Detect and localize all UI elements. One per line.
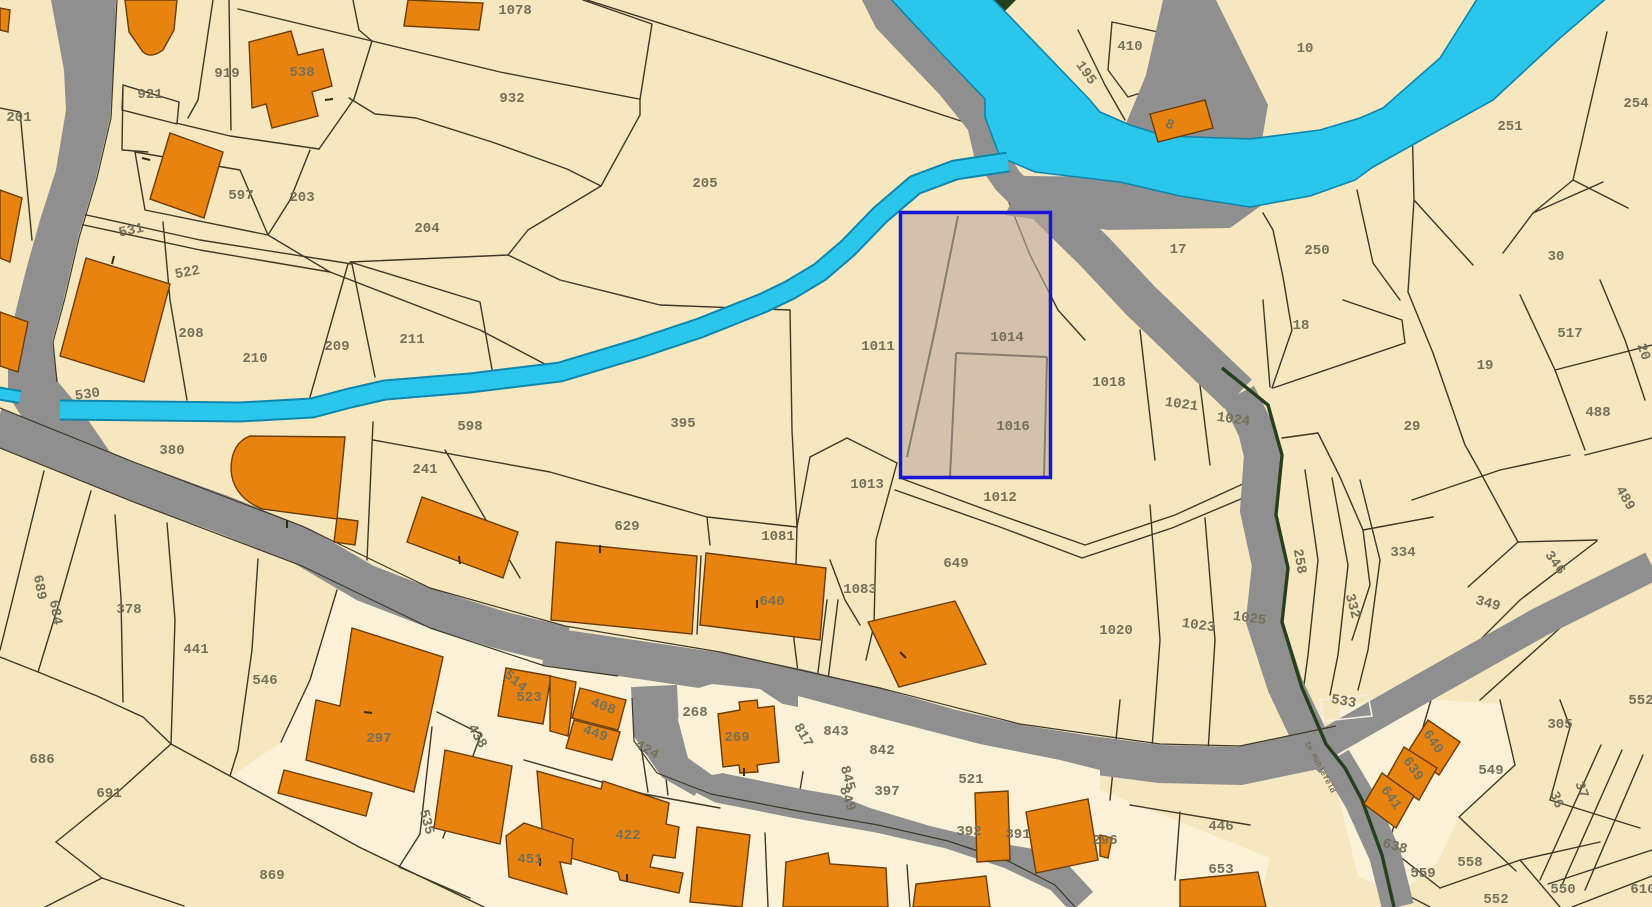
svg-text:597: 597 — [228, 188, 253, 204]
svg-text:268: 268 — [682, 705, 707, 721]
svg-text:1013: 1013 — [850, 477, 884, 493]
svg-text:921: 921 — [137, 87, 162, 103]
svg-text:422: 422 — [615, 828, 640, 844]
svg-text:208: 208 — [178, 326, 203, 342]
svg-text:1083: 1083 — [843, 582, 877, 598]
svg-text:441: 441 — [183, 642, 208, 658]
svg-text:843: 843 — [823, 724, 848, 740]
svg-text:1012: 1012 — [983, 490, 1017, 506]
svg-text:395: 395 — [670, 416, 695, 432]
svg-text:211: 211 — [399, 332, 424, 348]
svg-text:538: 538 — [289, 65, 314, 81]
svg-text:296: 296 — [1092, 833, 1117, 849]
svg-text:629: 629 — [614, 519, 639, 535]
svg-text:558: 558 — [1457, 855, 1482, 871]
svg-text:380: 380 — [159, 443, 184, 459]
svg-text:397: 397 — [874, 784, 899, 800]
svg-text:932: 932 — [499, 91, 524, 107]
svg-text:546: 546 — [252, 673, 277, 689]
svg-text:305: 305 — [1547, 717, 1572, 733]
svg-text:205: 205 — [692, 176, 717, 192]
svg-text:869: 869 — [259, 868, 284, 884]
svg-text:392: 392 — [956, 824, 981, 840]
svg-text:297: 297 — [366, 731, 391, 747]
svg-text:919: 919 — [214, 66, 239, 82]
svg-text:378: 378 — [116, 602, 141, 618]
svg-text:18: 18 — [1293, 318, 1310, 334]
svg-text:451: 451 — [517, 852, 542, 868]
svg-text:842: 842 — [869, 743, 894, 759]
svg-text:29: 29 — [1404, 419, 1421, 435]
svg-text:653: 653 — [1208, 862, 1233, 878]
svg-text:1016: 1016 — [996, 419, 1030, 435]
svg-text:517: 517 — [1557, 326, 1582, 342]
svg-text:640: 640 — [759, 594, 784, 610]
svg-text:1081: 1081 — [761, 529, 795, 545]
svg-text:30: 30 — [1548, 249, 1565, 265]
svg-text:1020: 1020 — [1099, 623, 1133, 639]
svg-text:410: 410 — [1117, 39, 1142, 55]
svg-text:19: 19 — [1477, 358, 1494, 374]
svg-text:552: 552 — [1483, 892, 1508, 907]
svg-text:691: 691 — [96, 786, 121, 802]
svg-text:1014: 1014 — [990, 330, 1024, 346]
svg-text:559: 559 — [1410, 866, 1435, 882]
svg-text:523: 523 — [516, 690, 541, 706]
svg-text:254: 254 — [1623, 96, 1648, 112]
svg-text:241: 241 — [412, 462, 437, 478]
svg-text:10: 10 — [1297, 41, 1314, 57]
svg-text:1018: 1018 — [1092, 375, 1126, 391]
svg-text:203: 203 — [289, 190, 314, 206]
svg-text:550: 550 — [1550, 882, 1575, 898]
svg-text:334: 334 — [1390, 545, 1415, 561]
svg-text:210: 210 — [242, 351, 267, 367]
svg-text:552: 552 — [1628, 693, 1652, 709]
svg-text:598: 598 — [457, 419, 482, 435]
svg-text:446: 446 — [1208, 819, 1233, 835]
svg-text:488: 488 — [1585, 405, 1610, 421]
svg-text:269: 269 — [724, 730, 749, 746]
svg-text:521: 521 — [958, 772, 983, 788]
svg-text:201: 201 — [6, 110, 31, 126]
svg-text:610: 610 — [1630, 882, 1652, 898]
svg-text:549: 549 — [1478, 763, 1503, 779]
svg-text:391: 391 — [1005, 827, 1030, 843]
svg-text:1078: 1078 — [498, 3, 532, 19]
svg-text:204: 204 — [414, 221, 439, 237]
svg-text:209: 209 — [324, 339, 349, 355]
svg-text:250: 250 — [1304, 243, 1329, 259]
svg-text:17: 17 — [1170, 242, 1187, 258]
svg-text:251: 251 — [1497, 119, 1522, 135]
svg-text:1011: 1011 — [861, 339, 895, 355]
svg-text:686: 686 — [29, 752, 54, 768]
svg-text:649: 649 — [943, 556, 968, 572]
